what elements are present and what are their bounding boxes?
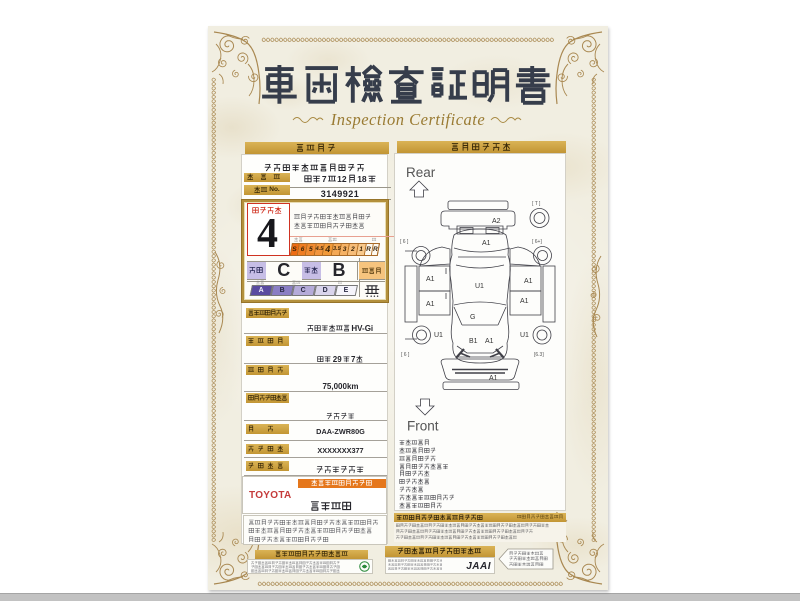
svg-text:A1: A1 [524,278,533,285]
svg-text:A2: A2 [492,218,501,225]
svg-text:[ T ]: [ T ] [532,201,541,207]
svg-text:U1: U1 [475,283,484,290]
svg-text:G: G [470,314,475,321]
svg-text:A1: A1 [489,375,498,382]
svg-text:A1: A1 [482,240,491,247]
svg-text:A1: A1 [485,338,494,345]
svg-text:Front: Front [407,419,439,434]
svg-text:[ 6 ]: [ 6 ] [400,239,409,245]
svg-text:Rear: Rear [406,165,436,180]
svg-text:U1: U1 [434,332,443,339]
svg-text:A1: A1 [520,298,529,305]
svg-text:A1: A1 [426,276,435,283]
svg-text:U1: U1 [520,332,529,339]
svg-text:A1: A1 [426,301,435,308]
svg-text:[ 6+]: [ 6+] [532,239,542,245]
svg-text:B1: B1 [469,338,478,345]
svg-text:[ 6 ]: [ 6 ] [401,352,410,358]
svg-text:[6.3]: [6.3] [534,352,544,358]
